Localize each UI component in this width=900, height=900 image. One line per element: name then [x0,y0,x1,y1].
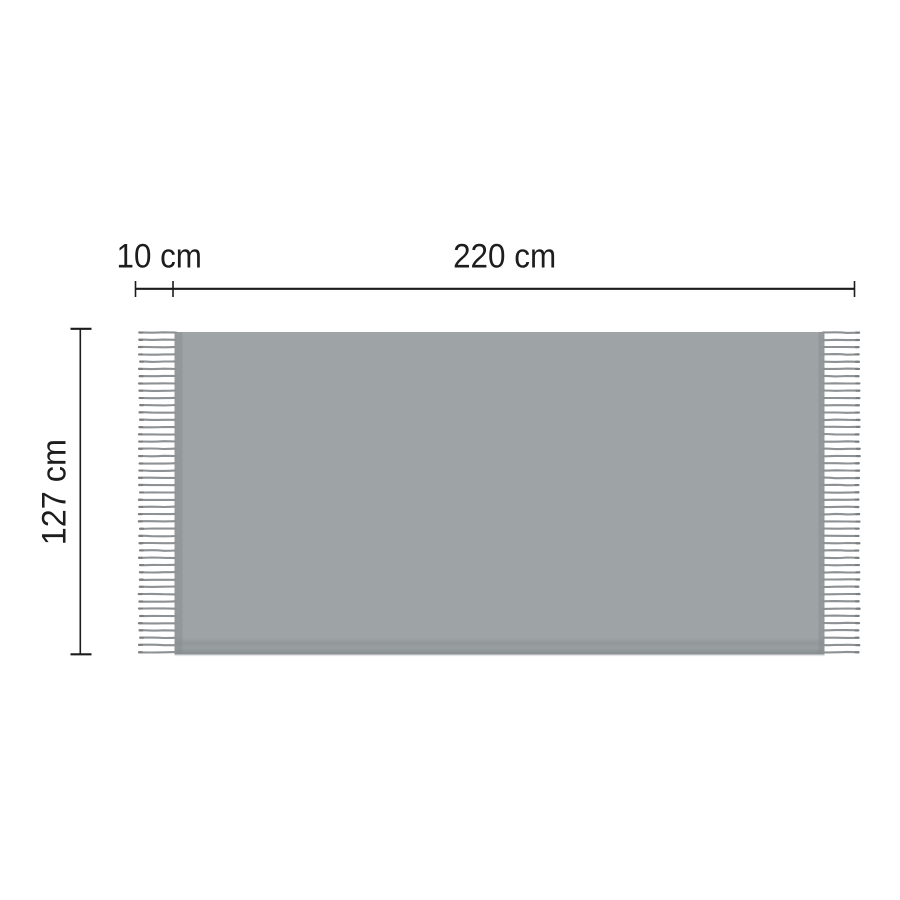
svg-text:127 cm: 127 cm [36,439,74,545]
svg-text:220 cm: 220 cm [453,236,556,275]
svg-text:10 cm: 10 cm [117,236,202,275]
